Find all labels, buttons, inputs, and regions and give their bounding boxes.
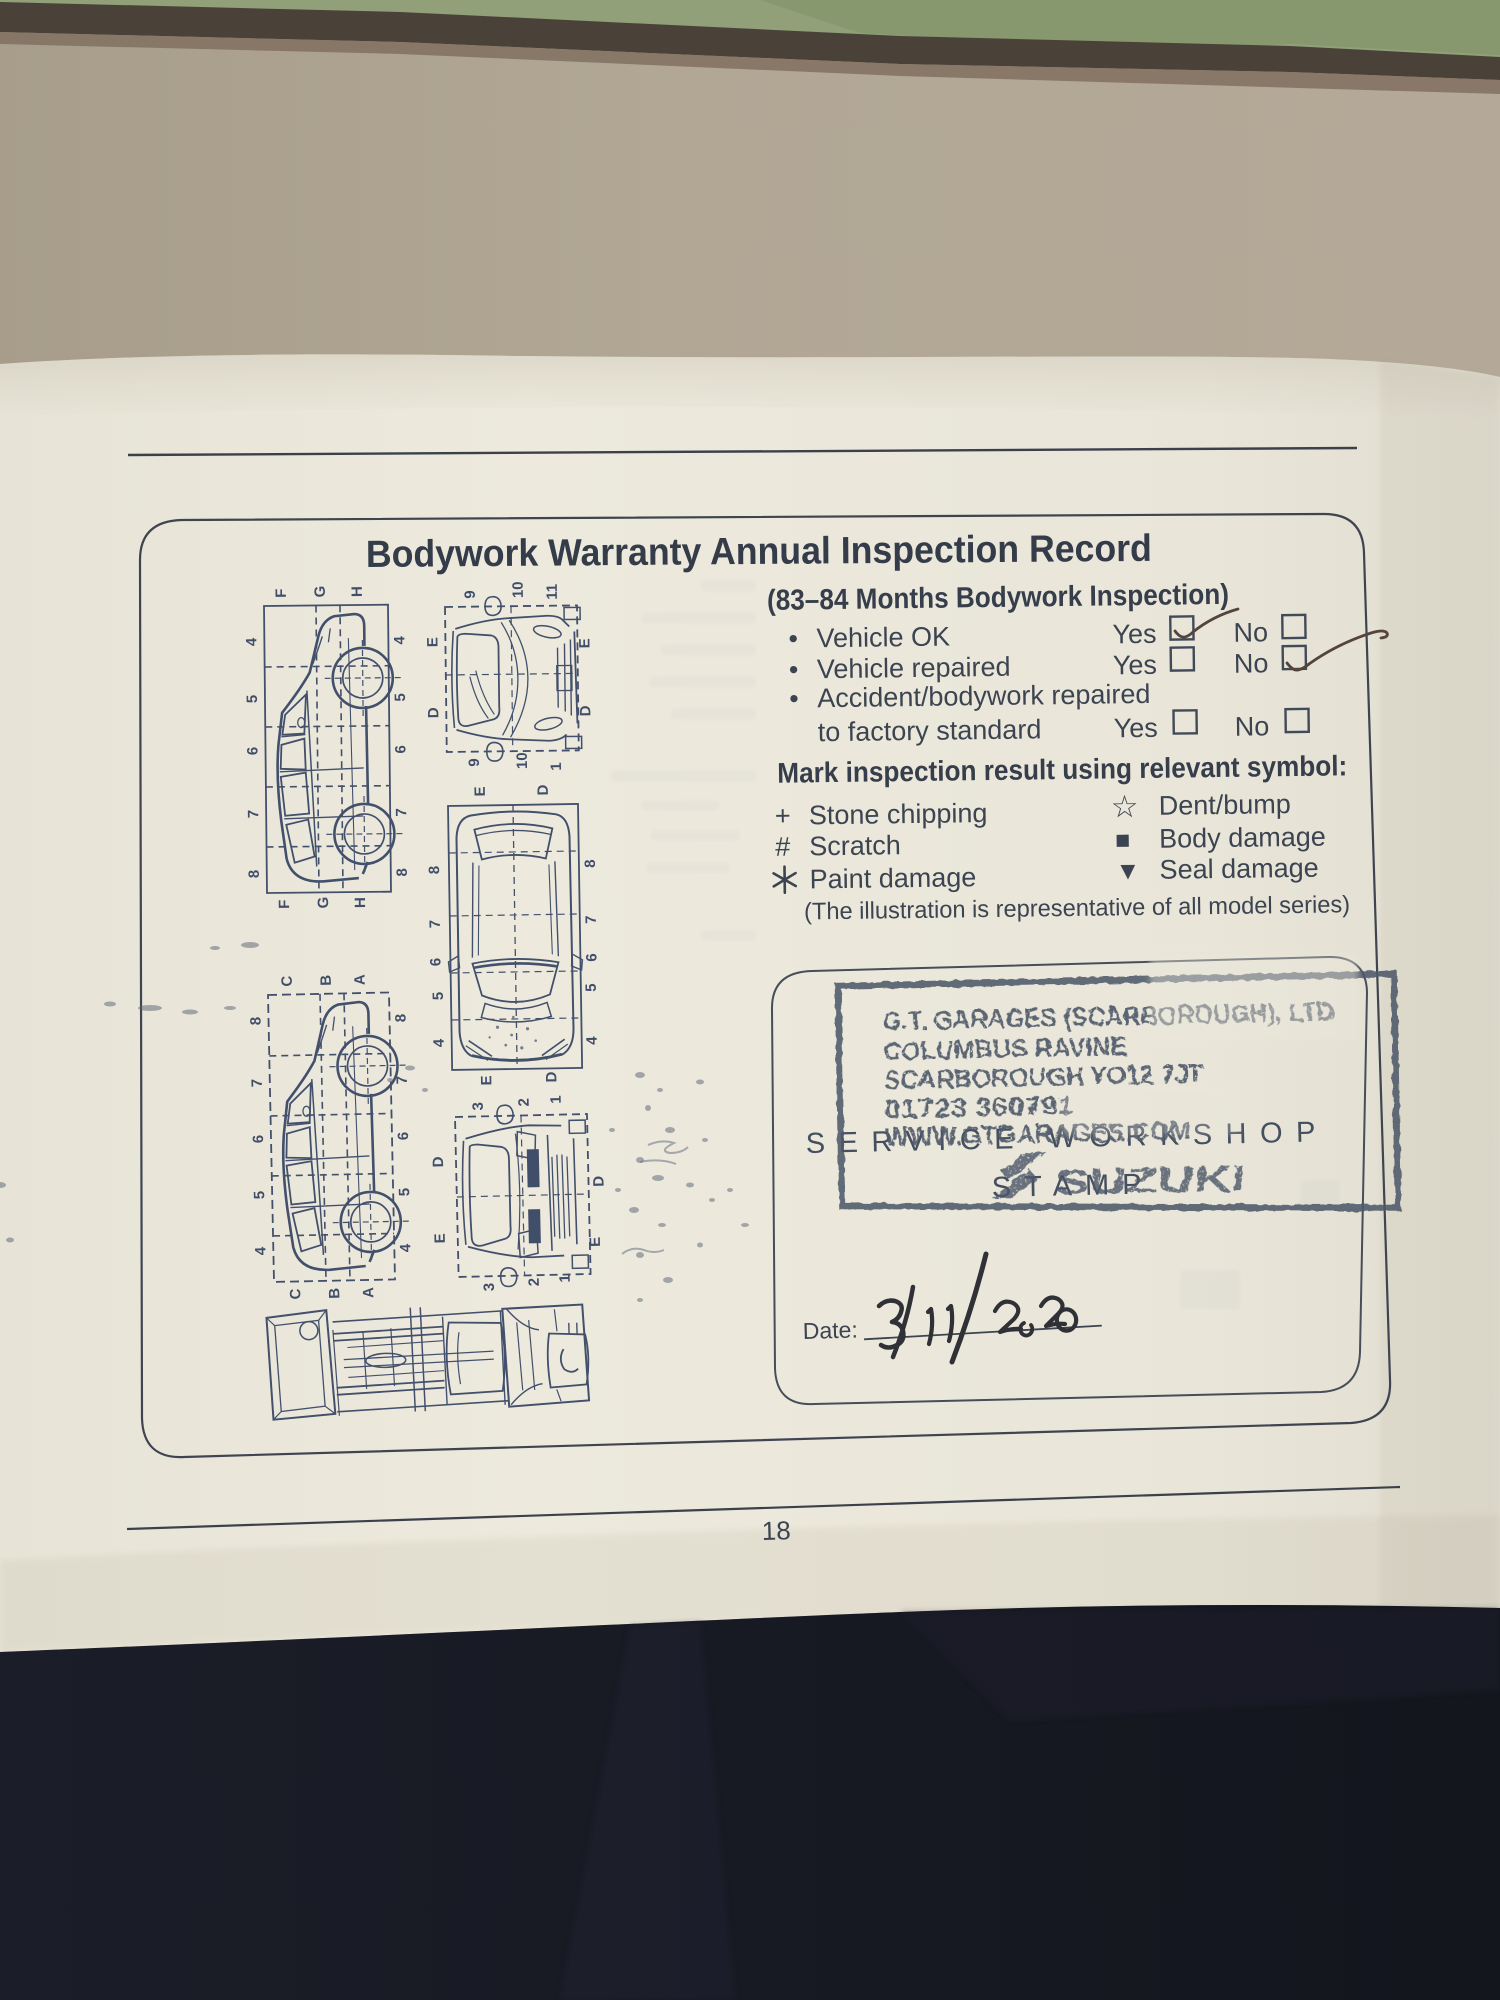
- svg-text:to factory standard: to factory standard: [818, 714, 1042, 747]
- svg-text:D: D: [577, 705, 594, 716]
- svg-text:3: 3: [470, 1102, 487, 1111]
- svg-text:8: 8: [392, 1014, 409, 1023]
- svg-text:SUZUKI: SUZUKI: [1054, 1157, 1247, 1202]
- svg-text:Dent/bump: Dent/bump: [1159, 789, 1291, 821]
- svg-text:No: No: [1235, 711, 1270, 741]
- svg-text:5: 5: [396, 1188, 413, 1197]
- svg-text:7: 7: [249, 1079, 266, 1088]
- svg-text:9: 9: [466, 758, 483, 767]
- svg-text:F: F: [273, 589, 290, 598]
- svg-text:F: F: [276, 900, 293, 909]
- svg-text:8: 8: [247, 1017, 264, 1026]
- svg-text:7: 7: [427, 920, 444, 929]
- svg-text:5: 5: [583, 983, 600, 992]
- svg-text:A: A: [360, 1287, 377, 1298]
- svg-text:•: •: [789, 684, 799, 714]
- svg-text:D: D: [425, 707, 442, 718]
- svg-text:Scratch: Scratch: [809, 830, 901, 861]
- svg-text:Bodywork Warranty Annual Inspe: Bodywork Warranty Annual Inspection Reco…: [366, 528, 1152, 576]
- svg-text:E: E: [587, 1237, 604, 1247]
- svg-text:8: 8: [394, 868, 411, 877]
- svg-text:C: C: [287, 1288, 304, 1299]
- svg-text:B: B: [318, 975, 335, 986]
- svg-text:Vehicle OK: Vehicle OK: [816, 622, 950, 654]
- svg-text:■: ■: [1115, 826, 1130, 854]
- svg-text:4: 4: [243, 637, 260, 646]
- svg-text:E: E: [576, 638, 593, 648]
- svg-text:Vehicle repaired: Vehicle repaired: [817, 652, 1011, 685]
- svg-text:6: 6: [395, 1132, 412, 1141]
- svg-text:8: 8: [246, 870, 263, 879]
- svg-text:4: 4: [584, 1036, 601, 1045]
- svg-text:A: A: [352, 974, 369, 985]
- svg-text:11: 11: [544, 584, 561, 600]
- svg-text:Stone chipping: Stone chipping: [809, 798, 988, 830]
- svg-text:•: •: [788, 624, 798, 654]
- svg-text:6: 6: [244, 747, 261, 756]
- svg-text:D: D: [590, 1176, 607, 1187]
- svg-text:4: 4: [397, 1243, 414, 1252]
- svg-text:E: E: [424, 637, 441, 647]
- svg-text:D: D: [543, 1071, 560, 1082]
- svg-text:2: 2: [526, 1278, 543, 1287]
- svg-text:#: #: [775, 832, 790, 862]
- svg-text:8: 8: [582, 859, 599, 868]
- svg-text:(83–84 Months Bodywork Inspect: (83–84 Months Bodywork Inspection): [767, 579, 1229, 617]
- svg-text:6: 6: [583, 953, 600, 962]
- svg-text:9: 9: [462, 590, 479, 599]
- svg-text:7: 7: [583, 915, 600, 924]
- svg-text:Yes: Yes: [1112, 619, 1156, 650]
- svg-text:H: H: [349, 586, 366, 597]
- svg-text:Accident/bodywork repaired: Accident/bodywork repaired: [817, 679, 1151, 713]
- svg-text:C: C: [279, 975, 296, 986]
- svg-text:6: 6: [250, 1135, 267, 1144]
- svg-text:1: 1: [548, 1095, 565, 1104]
- svg-text:7: 7: [394, 1076, 411, 1085]
- svg-text:2: 2: [516, 1098, 533, 1107]
- svg-text:1: 1: [557, 1274, 574, 1283]
- svg-text:6: 6: [392, 745, 409, 754]
- svg-text:5: 5: [251, 1191, 268, 1200]
- svg-text:☆: ☆: [1111, 789, 1139, 824]
- svg-text:5: 5: [244, 695, 261, 704]
- svg-text:7: 7: [245, 810, 262, 819]
- svg-text:10: 10: [510, 581, 527, 598]
- svg-text:Seal damage: Seal damage: [1159, 853, 1319, 885]
- svg-text:B: B: [326, 1287, 343, 1298]
- svg-text:Body damage: Body damage: [1159, 822, 1326, 854]
- svg-text:+: +: [775, 801, 791, 831]
- svg-text:G: G: [315, 897, 332, 909]
- svg-text:Yes: Yes: [1114, 713, 1158, 744]
- svg-text:5: 5: [430, 992, 447, 1001]
- svg-text:E: E: [432, 1233, 449, 1243]
- svg-text:6: 6: [427, 958, 444, 967]
- svg-text:18: 18: [761, 1515, 791, 1546]
- svg-text:8: 8: [426, 866, 443, 875]
- svg-text:E: E: [472, 786, 489, 796]
- svg-text:Date:: Date:: [802, 1316, 858, 1344]
- svg-text:Yes: Yes: [1113, 650, 1157, 681]
- svg-text:5: 5: [392, 693, 409, 702]
- svg-text:4: 4: [391, 635, 408, 644]
- svg-text:4: 4: [252, 1246, 269, 1255]
- svg-text:No: No: [1234, 648, 1269, 678]
- svg-text:No: No: [1233, 617, 1268, 647]
- svg-text:D: D: [430, 1156, 447, 1167]
- svg-text:D: D: [535, 784, 552, 795]
- svg-text:G: G: [312, 586, 329, 598]
- svg-text:10: 10: [514, 752, 531, 769]
- svg-text:Paint damage: Paint damage: [809, 862, 976, 894]
- svg-text:1: 1: [548, 762, 565, 771]
- svg-text:H: H: [352, 897, 369, 908]
- svg-text:4: 4: [431, 1038, 448, 1047]
- svg-text:E: E: [478, 1075, 495, 1085]
- svg-text:7: 7: [393, 808, 410, 817]
- svg-text:3: 3: [481, 1283, 498, 1292]
- svg-text:•: •: [789, 655, 799, 685]
- svg-text:▼: ▼: [1115, 857, 1140, 885]
